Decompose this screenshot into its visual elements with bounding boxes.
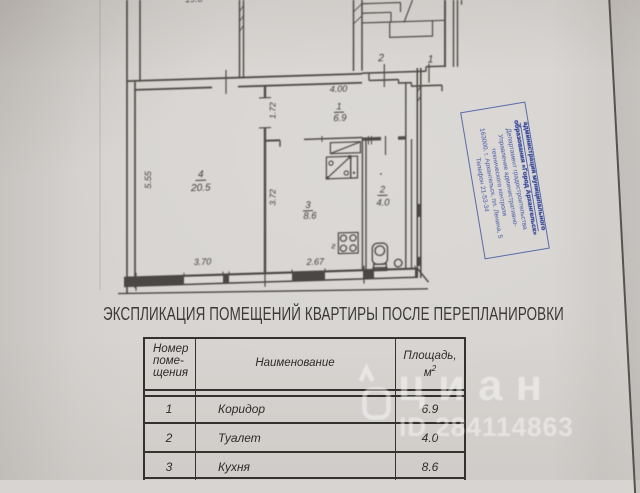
svg-text:циан: циан	[398, 361, 555, 410]
svg-text:ID 284114863: ID 284114863	[399, 412, 574, 442]
